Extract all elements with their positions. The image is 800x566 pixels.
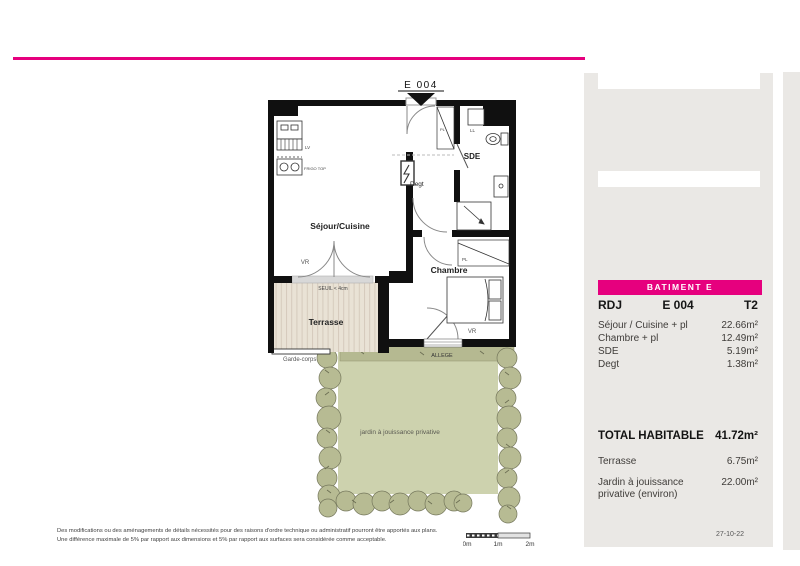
- scale-tick-2: 2m: [525, 541, 534, 548]
- room-areas-list: Séjour / Cuisine + pl 22.66m² Chambre + …: [598, 319, 758, 371]
- extra-area: 22.00m²: [721, 477, 758, 501]
- batiment-banner: BATIMENT E: [598, 280, 762, 295]
- total-label: TOTAL HABITABLE: [598, 430, 704, 442]
- extra-area: 6.75m²: [727, 456, 758, 467]
- room-area-row: Séjour / Cuisine + pl 22.66m²: [598, 319, 758, 332]
- level-label: RDJ: [598, 298, 651, 312]
- label-vr-sejour: VR: [301, 260, 310, 266]
- pillow: [489, 280, 501, 299]
- label-sde: SDE: [464, 152, 481, 161]
- disclaimer-line-2: Une différence maximale de 5% par rappor…: [57, 536, 437, 545]
- label-garde-corps: Garde-corps: [283, 357, 316, 363]
- panel-notch-mid: [598, 171, 760, 187]
- room-area: 12.49m²: [721, 332, 758, 345]
- room-area: 5.19m²: [727, 345, 758, 358]
- room-area: 22.66m²: [721, 319, 758, 332]
- plan-date: 27-10-22: [598, 531, 744, 538]
- label-lv: LV: [305, 145, 310, 150]
- panel-notch-top: [598, 73, 760, 89]
- terrasse-row: Terrasse 6.75m²: [598, 456, 758, 467]
- label-vr-chambre: VR: [468, 329, 477, 335]
- room-area-row: SDE 5.19m²: [598, 345, 758, 358]
- label-frigo: FRIGO TOP: [304, 166, 326, 171]
- shower: [457, 202, 491, 230]
- label-sejour: Séjour/Cuisine: [310, 221, 370, 231]
- label-allege: ALLEGE: [431, 353, 453, 359]
- plan-sheet: E 004 Séjour/Cuisine Chambre SDE Degt Te…: [0, 0, 800, 566]
- room-area-row: Degt 1.38m²: [598, 358, 758, 371]
- extra-label: Terrasse: [598, 456, 636, 467]
- unit-tag-label: E 004: [404, 80, 438, 91]
- label-jardin: jardin à jouissance privative: [359, 429, 440, 436]
- info-panel: BATIMENT E RDJ E 004 T2 Séjour / Cuisine…: [584, 73, 773, 547]
- total-habitable-row: TOTAL HABITABLE 41.72m²: [598, 430, 758, 442]
- unit-number: E 004: [651, 298, 704, 312]
- jardin-row: Jardin à jouissance privative (environ) …: [598, 477, 758, 501]
- bedroom-window: [424, 339, 462, 347]
- extra-label: Jardin à jouissance privative (environ): [598, 477, 706, 501]
- label-degt: Degt: [410, 181, 424, 188]
- threshold: [292, 276, 373, 283]
- scale-tick-1: 1m: [493, 541, 502, 548]
- pillow: [489, 301, 501, 320]
- disclaimer-text: Des modifications ou des aménagements de…: [57, 527, 437, 544]
- label-pl-entry: PL: [440, 127, 446, 132]
- room-area: 1.38m²: [727, 358, 758, 371]
- room-label: Chambre + pl: [598, 332, 658, 345]
- adjacent-panel-edge: [783, 72, 800, 550]
- scale-bar: 0m 1m 2m: [463, 530, 537, 550]
- label-ll: LL: [470, 128, 476, 133]
- railing: [272, 349, 330, 354]
- unit-summary-row: RDJ E 004 T2: [598, 298, 758, 312]
- total-area: 41.72m²: [715, 430, 758, 442]
- scale-tick-0: 0m: [463, 541, 472, 548]
- label-pl-chambre: PL: [462, 257, 468, 262]
- room-label: Degt: [598, 358, 619, 371]
- label-seuil: SEUIL < 4cm: [318, 286, 347, 292]
- label-terrasse: Terrasse: [309, 317, 344, 327]
- wardrobe: [458, 240, 509, 266]
- unit-type: T2: [705, 298, 758, 312]
- room-area-row: Chambre + pl 12.49m²: [598, 332, 758, 345]
- room-label: SDE: [598, 345, 619, 358]
- washing-machine: [468, 109, 484, 125]
- room-label: Séjour / Cuisine + pl: [598, 319, 688, 332]
- disclaimer-line-1: Des modifications ou des aménagements de…: [57, 527, 437, 536]
- label-chambre: Chambre: [431, 265, 468, 275]
